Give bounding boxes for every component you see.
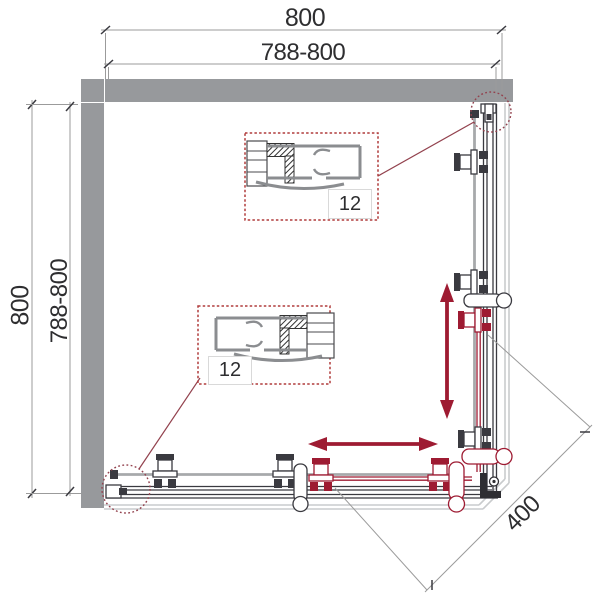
wall-left (81, 79, 105, 508)
dim-left-outer-label: 800 (9, 256, 34, 356)
wall-top (81, 79, 513, 102)
slide-direction-arrow-vertical (440, 283, 454, 419)
roller-clamp-right-red (458, 308, 491, 332)
dim-top-inner-label: 788-800 (228, 41, 378, 65)
shower-enclosure-technical-drawing: 800 788-800 800 788-800 400 12 12 (0, 0, 610, 600)
roller-clamp-bottom-1 (153, 454, 177, 488)
dimension-diagonal-opening (335, 335, 592, 592)
dim-top-outer-label: 800 (255, 6, 355, 31)
corner-roller-right-red (462, 449, 512, 465)
dim-left-inner-label: 788-800 (48, 251, 72, 351)
roller-clamp-right-3 (458, 427, 491, 451)
door-handle-bottom (293, 464, 308, 512)
door-handle-right (464, 293, 512, 308)
glass-thickness-label-top: 12 (328, 189, 372, 219)
corner-roller-bottom-red (449, 462, 465, 512)
glass-thickness-label-bottom: 12 (208, 356, 252, 385)
slide-direction-arrow-horizontal (308, 437, 438, 451)
